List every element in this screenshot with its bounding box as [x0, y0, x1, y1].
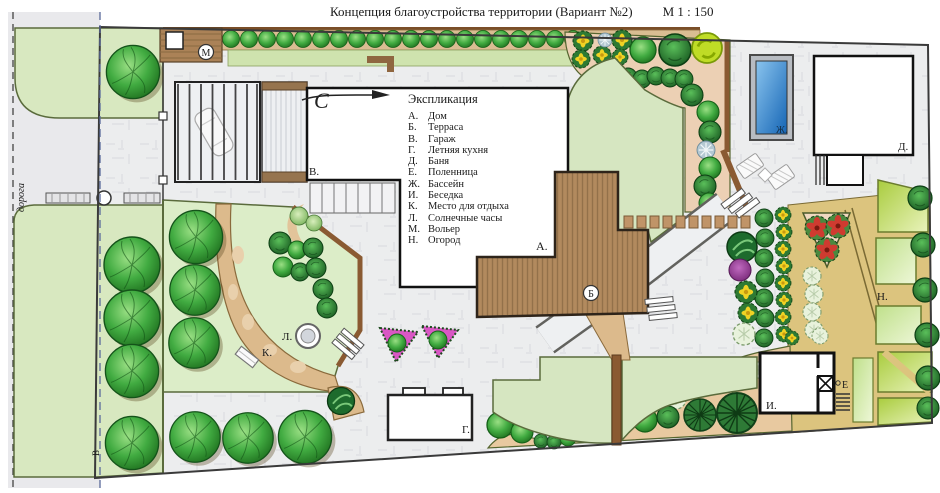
label-pool: Ж.	[776, 125, 787, 136]
legend: Экспликация А.ДомБ.ТеррасаВ.ГаражГ.Летня…	[408, 92, 578, 247]
legend-item-label: Огород	[428, 235, 460, 246]
legend-item-code: Л.	[408, 213, 428, 224]
legend-item: Г.Летняя кухня	[408, 145, 578, 156]
label-aviary: М	[199, 45, 214, 60]
legend-item: М.Вольер	[408, 224, 578, 235]
scale-text: М 1 : 150	[663, 4, 714, 20]
sundial	[296, 324, 320, 348]
legend-item-code: Ж.	[408, 179, 428, 190]
legend-item: Б.Терраса	[408, 122, 578, 133]
terrace-steps	[645, 297, 677, 321]
legend-item-label: Летняя кухня	[428, 145, 488, 156]
legend-item-label: Вольер	[428, 224, 460, 235]
label-gazebo: И.	[766, 400, 777, 412]
legend-item-code: Б.	[408, 122, 428, 133]
legend-item-label: Баня	[428, 156, 449, 167]
label-sundial: Л.	[282, 331, 292, 343]
legend-item: Д.Баня	[408, 156, 578, 167]
label-terrace: Б	[584, 286, 599, 301]
label-summer-kitchen: Г.	[462, 424, 470, 436]
legend-item-label: Солнечные часы	[428, 213, 502, 224]
legend-item: Н.Огород	[408, 235, 578, 246]
legend-item-code: А.	[408, 111, 428, 122]
legend-item-label: Беседка	[428, 190, 463, 201]
legend-item-code: Н.	[408, 235, 428, 246]
legend-item-label: Дом	[428, 111, 447, 122]
aviary	[160, 28, 222, 62]
legend-item: А.Дом	[408, 111, 578, 122]
legend-item-code: Д.	[408, 156, 428, 167]
legend-item: К.Место для отдыха	[408, 201, 578, 212]
legend-item-label: Гараж	[428, 134, 456, 145]
legend-item-code: Г.	[408, 145, 428, 156]
svg-text:Е: Е	[842, 380, 848, 391]
svg-text:М: М	[202, 48, 211, 59]
label-bathhouse: Д.	[898, 141, 909, 153]
legend-item: Ж.Бассейн	[408, 179, 578, 190]
legend-item-code: К.	[408, 201, 428, 212]
legend-item-label: Бассейн	[428, 179, 464, 190]
landscape-plan-canvas: С А. Б В. Г. Д. Е Ж. И. К. Л. М Н. дорог…	[0, 0, 940, 493]
legend-item-label: Поленница	[428, 167, 478, 178]
legend-rows: А.ДомБ.ТеррасаВ.ГаражГ.Летняя кухняД.Бан…	[408, 111, 578, 247]
legend-item-code: В.	[408, 134, 428, 145]
svg-text:Б: Б	[588, 289, 594, 300]
legend-item-code: М.	[408, 224, 428, 235]
summer-kitchen	[388, 388, 472, 440]
legend-item: Л.Солнечные часы	[408, 213, 578, 224]
label-road: дорога	[16, 183, 27, 212]
legend-item-label: Терраса	[428, 122, 463, 133]
drawing-title: Концепция благоустройства территории (Ва…	[330, 4, 714, 20]
legend-item-code: Е.	[408, 167, 428, 178]
legend-title: Экспликация	[408, 92, 578, 107]
label-axis: В	[91, 450, 101, 456]
north-label: С	[314, 88, 329, 113]
garage-steps	[310, 183, 395, 213]
title-text: Концепция благоустройства территории (Ва…	[330, 4, 633, 20]
legend-item: Е.Поленница	[408, 167, 578, 178]
legend-item-label: Место для отдыха	[428, 201, 509, 212]
label-garden: Н.	[877, 291, 888, 303]
label-garage: В.	[309, 166, 319, 178]
label-rest-area: К.	[262, 347, 272, 359]
legend-item-code: И.	[408, 190, 428, 201]
legend-item: В.Гараж	[408, 134, 578, 145]
legend-item: И.Беседка	[408, 190, 578, 201]
